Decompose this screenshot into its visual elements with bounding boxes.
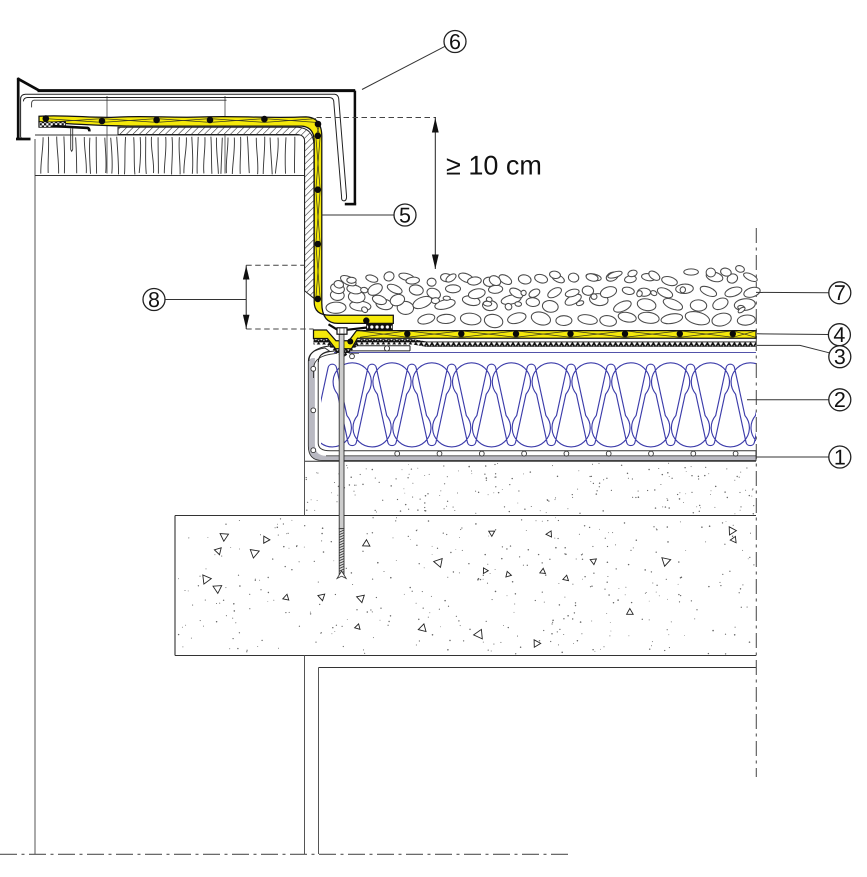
- svg-text:1: 1: [834, 445, 846, 469]
- svg-text:3: 3: [834, 345, 846, 369]
- svg-text:2: 2: [834, 388, 846, 412]
- svg-text:6: 6: [449, 30, 461, 54]
- svg-text:≥ 10 cm: ≥ 10 cm: [446, 151, 542, 181]
- svg-text:4: 4: [833, 323, 845, 347]
- svg-text:7: 7: [834, 281, 846, 305]
- svg-text:5: 5: [399, 203, 411, 227]
- svg-text:8: 8: [148, 288, 160, 312]
